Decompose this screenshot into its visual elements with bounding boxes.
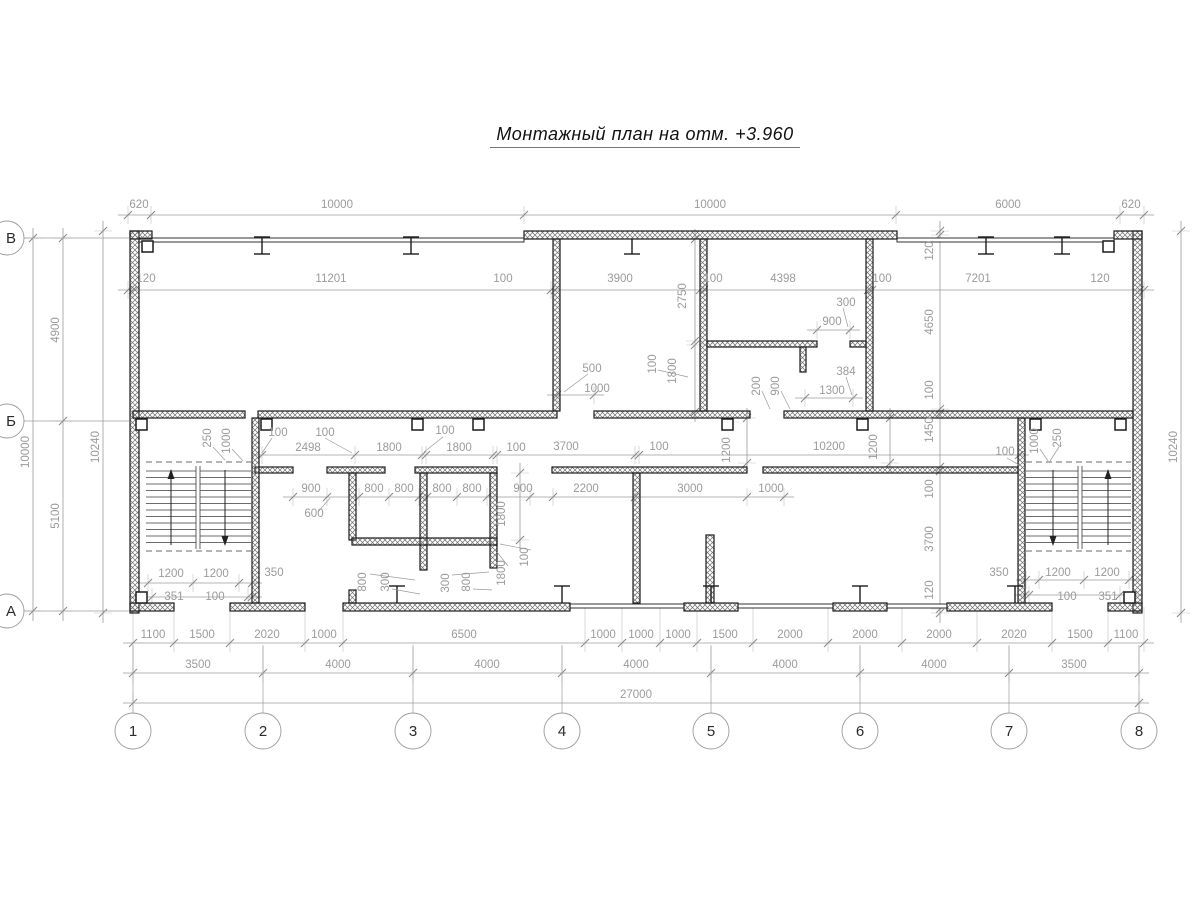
wall: [415, 467, 497, 473]
dim-label: 10240: [1168, 431, 1180, 463]
column-square-symbol: [473, 419, 484, 430]
wall: [850, 341, 866, 347]
dim-label: 3500: [185, 659, 211, 671]
axis-col-label: 1: [129, 723, 137, 740]
dim-label: 27000: [620, 689, 652, 701]
wall: [420, 473, 427, 570]
leader-line: [1007, 458, 1019, 465]
axis-row-label: А: [6, 603, 16, 620]
dim-label: 620: [1121, 199, 1140, 211]
dim-label: 900: [301, 483, 320, 495]
axis-row-label: Б: [6, 413, 16, 430]
axis-col-label: 8: [1135, 723, 1143, 740]
dim-label: 120: [136, 273, 155, 285]
leader-line: [762, 391, 770, 409]
dim-label: 100: [1057, 591, 1076, 603]
stair-arrow-head: [1105, 469, 1112, 479]
leader-line: [370, 574, 415, 580]
dim-label: 300: [380, 572, 392, 591]
dim-label: 100: [506, 442, 525, 454]
dim-label: 2200: [573, 483, 599, 495]
dim-label: 1500: [1067, 629, 1093, 641]
dim-label: 350: [989, 567, 1008, 579]
dim-label: 3000: [677, 483, 703, 495]
leader-line: [262, 438, 272, 453]
dim-label: 100: [435, 425, 454, 437]
wall: [258, 411, 557, 418]
dim-label: 4900: [50, 317, 62, 343]
wall: [700, 239, 707, 411]
wall: [349, 590, 356, 603]
wall: [327, 467, 385, 473]
dim-label: 100: [995, 446, 1014, 458]
thin-wall: [887, 604, 947, 608]
wall: [352, 538, 497, 545]
dim-label: 1800: [667, 358, 679, 384]
dim-label: 4650: [924, 309, 936, 335]
wall: [552, 467, 747, 473]
dim-label: 800: [364, 483, 383, 495]
wall: [800, 347, 806, 372]
wall: [763, 467, 1018, 473]
dim-label: 2020: [1001, 629, 1027, 641]
wall: [833, 603, 887, 611]
wall: [130, 231, 152, 239]
wall: [230, 603, 305, 611]
dim-label: 1800: [376, 442, 402, 454]
dim-label: 1100: [141, 629, 166, 641]
wall: [252, 418, 259, 603]
wall: [594, 411, 750, 418]
dim-label: 1000: [584, 383, 610, 395]
leader-line: [846, 377, 852, 395]
stair-arrow-head: [168, 469, 175, 479]
dim-label: 1200: [158, 568, 184, 580]
dim-label: 100: [924, 479, 936, 498]
column-square-symbol: [1103, 241, 1114, 252]
leader-line: [843, 308, 848, 327]
dim-label: 2000: [852, 629, 878, 641]
axis-col-label: 6: [856, 723, 864, 740]
dim-label: 5100: [50, 503, 62, 529]
wall: [553, 239, 560, 411]
dim-label: 2000: [777, 629, 803, 641]
axis-col-label: 7: [1005, 723, 1013, 740]
dim-label: 1000: [311, 629, 337, 641]
dim-label: 1200: [1094, 567, 1120, 579]
leader-line: [325, 438, 352, 453]
dim-label: 120: [924, 580, 936, 599]
dim-label: 351: [1098, 591, 1117, 603]
dim-label: 120: [1090, 273, 1109, 285]
dim-label: 10000: [20, 436, 32, 468]
dim-label: 7201: [965, 273, 991, 285]
dim-label: 300: [440, 573, 452, 592]
drawing-page: Монтажный план на отм. +3.960 12345678ВБ…: [0, 0, 1200, 900]
wall: [1018, 418, 1025, 603]
dim-label: 1000: [1029, 428, 1041, 454]
dim-label: 350: [264, 567, 283, 579]
dim-label: 100: [205, 591, 224, 603]
dim-label: 6000: [995, 199, 1021, 211]
axis-col-label: 3: [409, 723, 417, 740]
wall: [706, 535, 714, 603]
leader-line: [1040, 449, 1048, 461]
dim-label: 1800: [446, 442, 472, 454]
column-square-symbol: [142, 241, 153, 252]
dim-label: 100: [519, 547, 531, 566]
dim-label: 3500: [1061, 659, 1087, 671]
leader-line: [232, 449, 243, 461]
dim-label: 1300: [819, 385, 845, 397]
column-square-symbol: [722, 419, 733, 430]
wall: [1114, 231, 1142, 239]
dim-label: 1500: [189, 629, 215, 641]
dim-label: 100: [872, 273, 891, 285]
dim-label: 600: [304, 508, 323, 520]
dim-label: 1000: [758, 483, 784, 495]
wall: [784, 411, 1133, 418]
dim-label: 200: [751, 376, 763, 395]
dim-label: 351: [164, 591, 183, 603]
stair-arrow-head: [222, 536, 229, 546]
thin-wall: [897, 238, 1114, 242]
dim-label: 800: [432, 483, 451, 495]
floor-plan-drawing: 12345678ВБА62010000100006000620120112011…: [0, 0, 1200, 900]
dim-label: 4398: [770, 273, 796, 285]
dim-label: 3700: [553, 441, 579, 453]
wall: [707, 341, 817, 347]
dim-label: 2020: [254, 629, 280, 641]
dim-label: 2750: [677, 283, 689, 309]
dim-label: 100: [268, 427, 287, 439]
dim-label: 1200: [868, 434, 880, 460]
dim-label: 250: [202, 428, 214, 447]
leader-line: [392, 589, 420, 594]
dim-label: 10000: [694, 199, 726, 211]
dim-label: 4000: [623, 659, 649, 671]
dim-label: 100: [493, 273, 512, 285]
dim-label: 1800: [496, 560, 508, 586]
dim-label: 1000: [628, 629, 654, 641]
dim-label: 1000: [665, 629, 691, 641]
column-square-symbol: [1115, 419, 1126, 430]
dim-label: 1100: [1114, 629, 1139, 641]
leader-line: [781, 391, 790, 409]
leader-line: [424, 437, 443, 452]
dim-label: 1200: [203, 568, 229, 580]
wall: [343, 603, 570, 611]
column-square-symbol: [412, 419, 423, 430]
dim-label: 3900: [607, 273, 633, 285]
wall: [1108, 603, 1142, 611]
wall: [130, 603, 174, 611]
dim-label: 1500: [712, 629, 738, 641]
dim-label: 250: [1052, 428, 1064, 447]
wall: [947, 603, 1052, 611]
dim-label: 900: [513, 483, 532, 495]
dim-label: 11201: [315, 273, 346, 285]
dim-label: 800: [461, 572, 473, 591]
wall: [633, 473, 640, 603]
leader-line: [473, 589, 492, 590]
dim-label: 800: [462, 483, 481, 495]
wall: [349, 473, 356, 540]
dim-label: 2000: [926, 629, 952, 641]
dim-label: 120: [924, 241, 936, 260]
wall: [133, 411, 245, 418]
wall: [1133, 231, 1142, 613]
dim-label: 100: [649, 441, 668, 453]
dim-label: 100: [315, 427, 334, 439]
axis-col-label: 5: [707, 723, 715, 740]
column-square-symbol: [1124, 592, 1135, 603]
dim-label: 800: [357, 572, 369, 591]
dim-label: 10200: [813, 441, 845, 453]
dim-label: 1200: [1045, 567, 1071, 579]
leader-line: [1050, 447, 1059, 461]
dim-label: 800: [394, 483, 413, 495]
dim-label: 100: [703, 273, 722, 285]
dim-label: 4000: [325, 659, 351, 671]
axis-row-label: В: [6, 230, 16, 247]
dim-label: 3700: [924, 526, 936, 552]
dim-label: 1450: [924, 417, 936, 443]
wall: [866, 239, 873, 411]
stair-arrow-head: [1050, 536, 1057, 546]
column-square-symbol: [857, 419, 868, 430]
dim-label: 100: [647, 354, 659, 373]
dim-label: 1000: [221, 428, 233, 454]
dim-label: 620: [129, 199, 148, 211]
dim-label: 300: [836, 297, 855, 309]
thin-wall: [570, 604, 684, 608]
dim-label: 1000: [590, 629, 616, 641]
dim-label: 500: [582, 363, 601, 375]
dim-label: 900: [770, 376, 782, 395]
dim-label: 4000: [921, 659, 947, 671]
dim-label: 900: [822, 316, 841, 328]
dim-label: 6500: [451, 629, 477, 641]
dim-label: 4000: [474, 659, 500, 671]
axis-col-label: 4: [558, 723, 566, 740]
column-square-symbol: [136, 592, 147, 603]
thin-wall: [738, 604, 833, 608]
wall: [524, 231, 897, 239]
axis-col-label: 2: [259, 723, 267, 740]
dim-label: 1200: [721, 437, 733, 463]
dim-label: 4000: [772, 659, 798, 671]
wall: [255, 467, 293, 473]
dim-label: 1800: [496, 501, 508, 527]
dim-label: 2498: [295, 442, 321, 454]
wall: [684, 603, 738, 611]
dim-label: 10000: [321, 199, 353, 211]
dim-label: 100: [924, 380, 936, 399]
column-square-symbol: [136, 419, 147, 430]
dim-label: 384: [836, 366, 856, 378]
thin-wall: [139, 238, 524, 242]
dim-label: 10240: [90, 431, 102, 463]
